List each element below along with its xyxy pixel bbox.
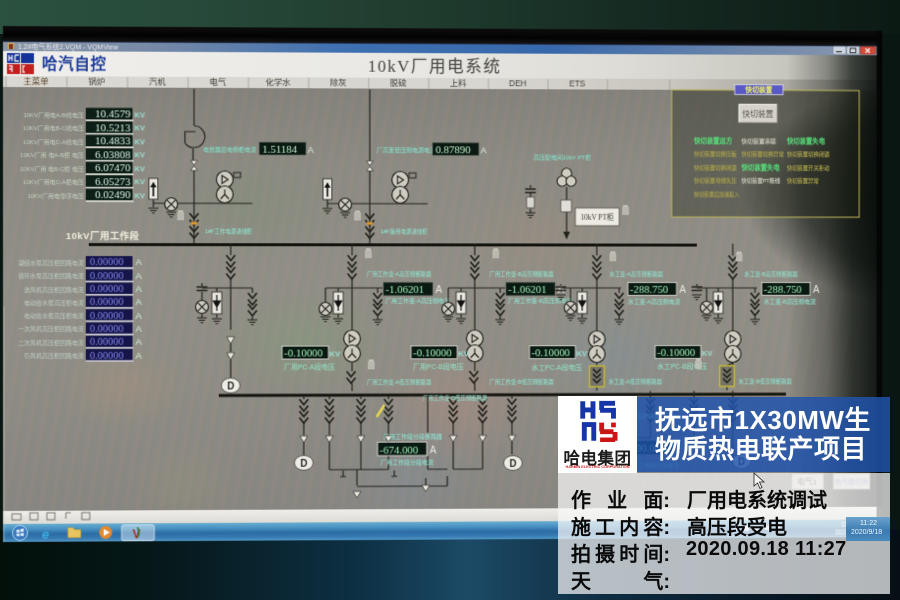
svg-text:1#F工作电源进线柜: 1#F工作电源进线柜 (205, 227, 253, 235)
svg-text:快切装置切换闭锁: 快切装置切换闭锁 (786, 151, 830, 159)
svg-text:0.00000: 0.00000 (90, 297, 124, 308)
svg-text:KV: KV (135, 137, 145, 146)
svg-text:二次风机高压柜回路电流: 二次风机高压柜回路电流 (18, 339, 84, 347)
svg-text:快切装置切换异常: 快切装置切换异常 (740, 151, 784, 159)
svg-text:厂用工作变-A低压侧断路器: 厂用工作变-A低压侧断路器 (367, 378, 432, 386)
svg-text:ETS: ETS (569, 79, 585, 89)
svg-text:厂用工作变-A高压侧电流: 厂用工作变-A高压侧电流 (385, 297, 450, 305)
svg-text:脱硫: 脱硫 (390, 78, 407, 88)
svg-text:1.51184: 1.51184 (262, 144, 297, 156)
svg-text:厂用工作变-B低压侧断路器: 厂用工作变-B低压侧断路器 (423, 394, 488, 402)
svg-text:KV: KV (458, 349, 470, 358)
svg-text:快切装置开关拒动: 快切装置开关拒动 (786, 164, 830, 172)
svg-text:电气: 电气 (209, 77, 226, 87)
svg-text:KV: KV (135, 151, 145, 160)
svg-text:厂用工作变-B高压侧断路器: 厂用工作变-B高压侧断路器 (489, 270, 554, 278)
svg-text:水工变-A低压侧断路器: 水工变-A低压侧断路器 (608, 378, 662, 386)
svg-text:10KV厂用 电A-B柜 电压: 10KV厂用 电A-B柜 电压 (20, 152, 84, 160)
svg-text:高压配电间10kV PT柜: 高压配电间10kV PT柜 (533, 153, 590, 161)
svg-text:0.00000: 0.00000 (90, 350, 124, 361)
svg-text:一次风机高压柜回路电流: 一次风机高压柜回路电流 (18, 325, 84, 333)
svg-text:-0.10000: -0.10000 (657, 348, 696, 360)
svg-text:-0.10000: -0.10000 (531, 348, 570, 360)
svg-text:厂用工作段分段电流: 厂用工作段分段电流 (381, 459, 434, 467)
svg-text:A: A (436, 285, 443, 296)
svg-text:KV: KV (135, 124, 145, 133)
svg-text:汽机: 汽机 (149, 77, 166, 87)
svg-text:A: A (679, 285, 686, 296)
svg-text:A: A (136, 271, 143, 282)
svg-text:6.07470: 6.07470 (95, 163, 131, 175)
svg-text:快切装置切换压板: 快切装置切换压板 (693, 150, 737, 158)
svg-text:KV: KV (576, 349, 587, 358)
svg-text:主菜单: 主菜单 (23, 77, 49, 87)
svg-text:10kV厂用工作段: 10kV厂用工作段 (66, 231, 140, 243)
svg-text:10KV厂用电C-A柜电压: 10KV厂用电C-A柜电压 (23, 179, 84, 187)
svg-text:0.00000: 0.00000 (90, 337, 124, 348)
svg-text:厂用工作段分段断路器: 厂用工作段分段断路器 (384, 433, 443, 441)
svg-text:1.2#电气系统2.VQM - VQMView: 1.2#电气系统2.VQM - VQMView (18, 43, 119, 53)
svg-text:0.00000: 0.00000 (90, 258, 124, 269)
svg-text:0.00000: 0.00000 (90, 271, 124, 282)
svg-text:10.5213: 10.5213 (95, 122, 131, 134)
svg-text:-288.750: -288.750 (764, 284, 803, 296)
svg-text:哈汽自控: 哈汽自控 (42, 54, 107, 73)
svg-text:电动给水泵高压柜电流: 电动给水泵高压柜电流 (24, 299, 84, 307)
svg-text:水工变-B高压侧断路器: 水工变-B高压侧断路器 (744, 270, 798, 278)
svg-text:e: e (42, 527, 49, 542)
svg-text:电动给水泵高压柜电流: 电动给水泵高压柜电流 (24, 312, 84, 320)
svg-text:-674.000: -674.000 (380, 445, 419, 457)
svg-text:厂用工作变-B高压侧电流: 厂用工作变-B高压侧电流 (508, 297, 572, 305)
svg-text:化学水: 化学水 (266, 78, 292, 88)
svg-text:10KV厂用电零序电压: 10KV厂用电零序电压 (27, 192, 83, 200)
svg-text:快切装置失电: 快切装置失电 (741, 163, 780, 172)
svg-text:凝结水泵高压柜回路电流: 凝结水泵高压柜回路电流 (18, 259, 84, 267)
svg-text:KV: KV (702, 349, 713, 358)
svg-text:A: A (136, 297, 143, 308)
svg-text:6.05273: 6.05273 (95, 176, 131, 188)
svg-text:0.87890: 0.87890 (436, 144, 471, 156)
svg-text:A: A (136, 350, 143, 361)
svg-text:送风机高压柜回路电流: 送风机高压柜回路电流 (24, 286, 84, 294)
svg-text:A: A (813, 285, 820, 296)
svg-text:KV: KV (135, 191, 145, 200)
svg-text:A: A (430, 445, 437, 456)
svg-text:0.00000: 0.00000 (90, 311, 124, 322)
svg-text:A: A (308, 145, 314, 155)
svg-text:厂用PC-A段电压: 厂用PC-A段电压 (284, 362, 335, 371)
svg-text:快切装置母线失压: 快切装置母线失压 (693, 177, 737, 185)
svg-text:水工PC-A段电压: 水工PC-A段电压 (531, 363, 581, 372)
svg-text:10KV厂用 电B-C柜 电压: 10KV厂用 电B-C柜 电压 (20, 165, 84, 173)
svg-text:快切装置后加速投入: 快切装置后加速投入 (694, 190, 740, 198)
svg-text:A: A (136, 324, 143, 335)
svg-text:水工变-B高压侧电流: 水工变-B高压侧电流 (764, 298, 816, 306)
svg-text:快切装置切换闭锁: 快切装置切换闭锁 (693, 164, 737, 172)
svg-text:10KV厂用电B-C线电压: 10KV厂用电B-C线电压 (23, 125, 84, 133)
svg-text:快切装置: 快切装置 (742, 109, 773, 119)
svg-text:快切装置PT断线: 快切装置PT断线 (740, 177, 780, 185)
svg-text:DEH: DEH (509, 79, 527, 89)
svg-text:-1.06201: -1.06201 (385, 284, 424, 296)
svg-text:10kV厂用电系统: 10kV厂用电系统 (368, 57, 502, 76)
svg-text:KV: KV (329, 350, 341, 359)
svg-text:A: A (136, 337, 143, 348)
svg-text:除灰: 除灰 (330, 78, 347, 88)
svg-text:0.00000: 0.00000 (90, 324, 124, 335)
svg-text:引风机高压柜回路电流: 引风机高压柜回路电流 (24, 352, 84, 360)
svg-text:-288.750: -288.750 (630, 284, 669, 296)
svg-text:KV: KV (135, 110, 145, 119)
svg-text:厂用工作变-B低压侧断路器: 厂用工作变-B低压侧断路器 (489, 378, 554, 386)
svg-text:10.4579: 10.4579 (95, 109, 131, 121)
svg-text:KV: KV (135, 164, 145, 173)
svg-text:快切装置串联: 快切装置串联 (740, 137, 776, 145)
svg-text:A: A (481, 145, 487, 155)
svg-text:KV: KV (135, 178, 145, 187)
svg-text:0.02490: 0.02490 (95, 190, 131, 202)
svg-text:A: A (136, 284, 143, 295)
svg-text:上料: 上料 (450, 78, 467, 88)
svg-text:0.00000: 0.00000 (90, 284, 124, 295)
svg-text:6.03808: 6.03808 (95, 149, 131, 161)
svg-text:快切装置失电: 快切装置失电 (787, 137, 826, 146)
svg-text:10KV厂用电A-B线电压: 10KV厂用电A-B线电压 (23, 111, 83, 119)
svg-text:快切装置异常: 快切装置异常 (786, 177, 819, 185)
svg-text:快切装置: 快切装置 (745, 86, 772, 95)
svg-text:10.4833: 10.4833 (95, 136, 131, 148)
svg-text:水工变-B低压侧断路器: 水工变-B低压侧断路器 (739, 377, 793, 385)
svg-text:10KV厂用电C-A线电压: 10KV厂用电C-A线电压 (23, 138, 84, 146)
svg-text:-0.10000: -0.10000 (284, 348, 323, 360)
svg-text:水工变-A高压侧电流: 水工变-A高压侧电流 (628, 298, 680, 306)
svg-text:锅炉: 锅炉 (88, 77, 105, 87)
svg-text:1#F备用电源进线柜: 1#F备用电源进线柜 (381, 227, 429, 235)
svg-text:厂用PC-B段电压: 厂用PC-B段电压 (413, 362, 464, 371)
svg-text:A: A (136, 311, 143, 322)
svg-text:10kV PT柜: 10kV PT柜 (580, 212, 614, 222)
svg-text:电抗器后电侧柜电流: 电抗器后电侧柜电流 (203, 146, 256, 154)
svg-text:A: A (136, 258, 143, 269)
svg-text:-1.06201: -1.06201 (508, 284, 546, 296)
svg-text:厂高变低压侧电源电流: 厂高变低压侧电源电流 (377, 146, 436, 154)
svg-text:-0.10000: -0.10000 (413, 348, 452, 360)
svg-text:水工变-A高压侧断路器: 水工变-A高压侧断路器 (609, 270, 663, 278)
svg-text:循环水泵高压柜回路电流: 循环水泵高压柜回路电流 (18, 272, 84, 280)
svg-text:快切装置运方: 快切装置运方 (694, 136, 733, 145)
svg-text:厂用工作变-A高压侧断路器: 厂用工作变-A高压侧断路器 (367, 270, 432, 278)
